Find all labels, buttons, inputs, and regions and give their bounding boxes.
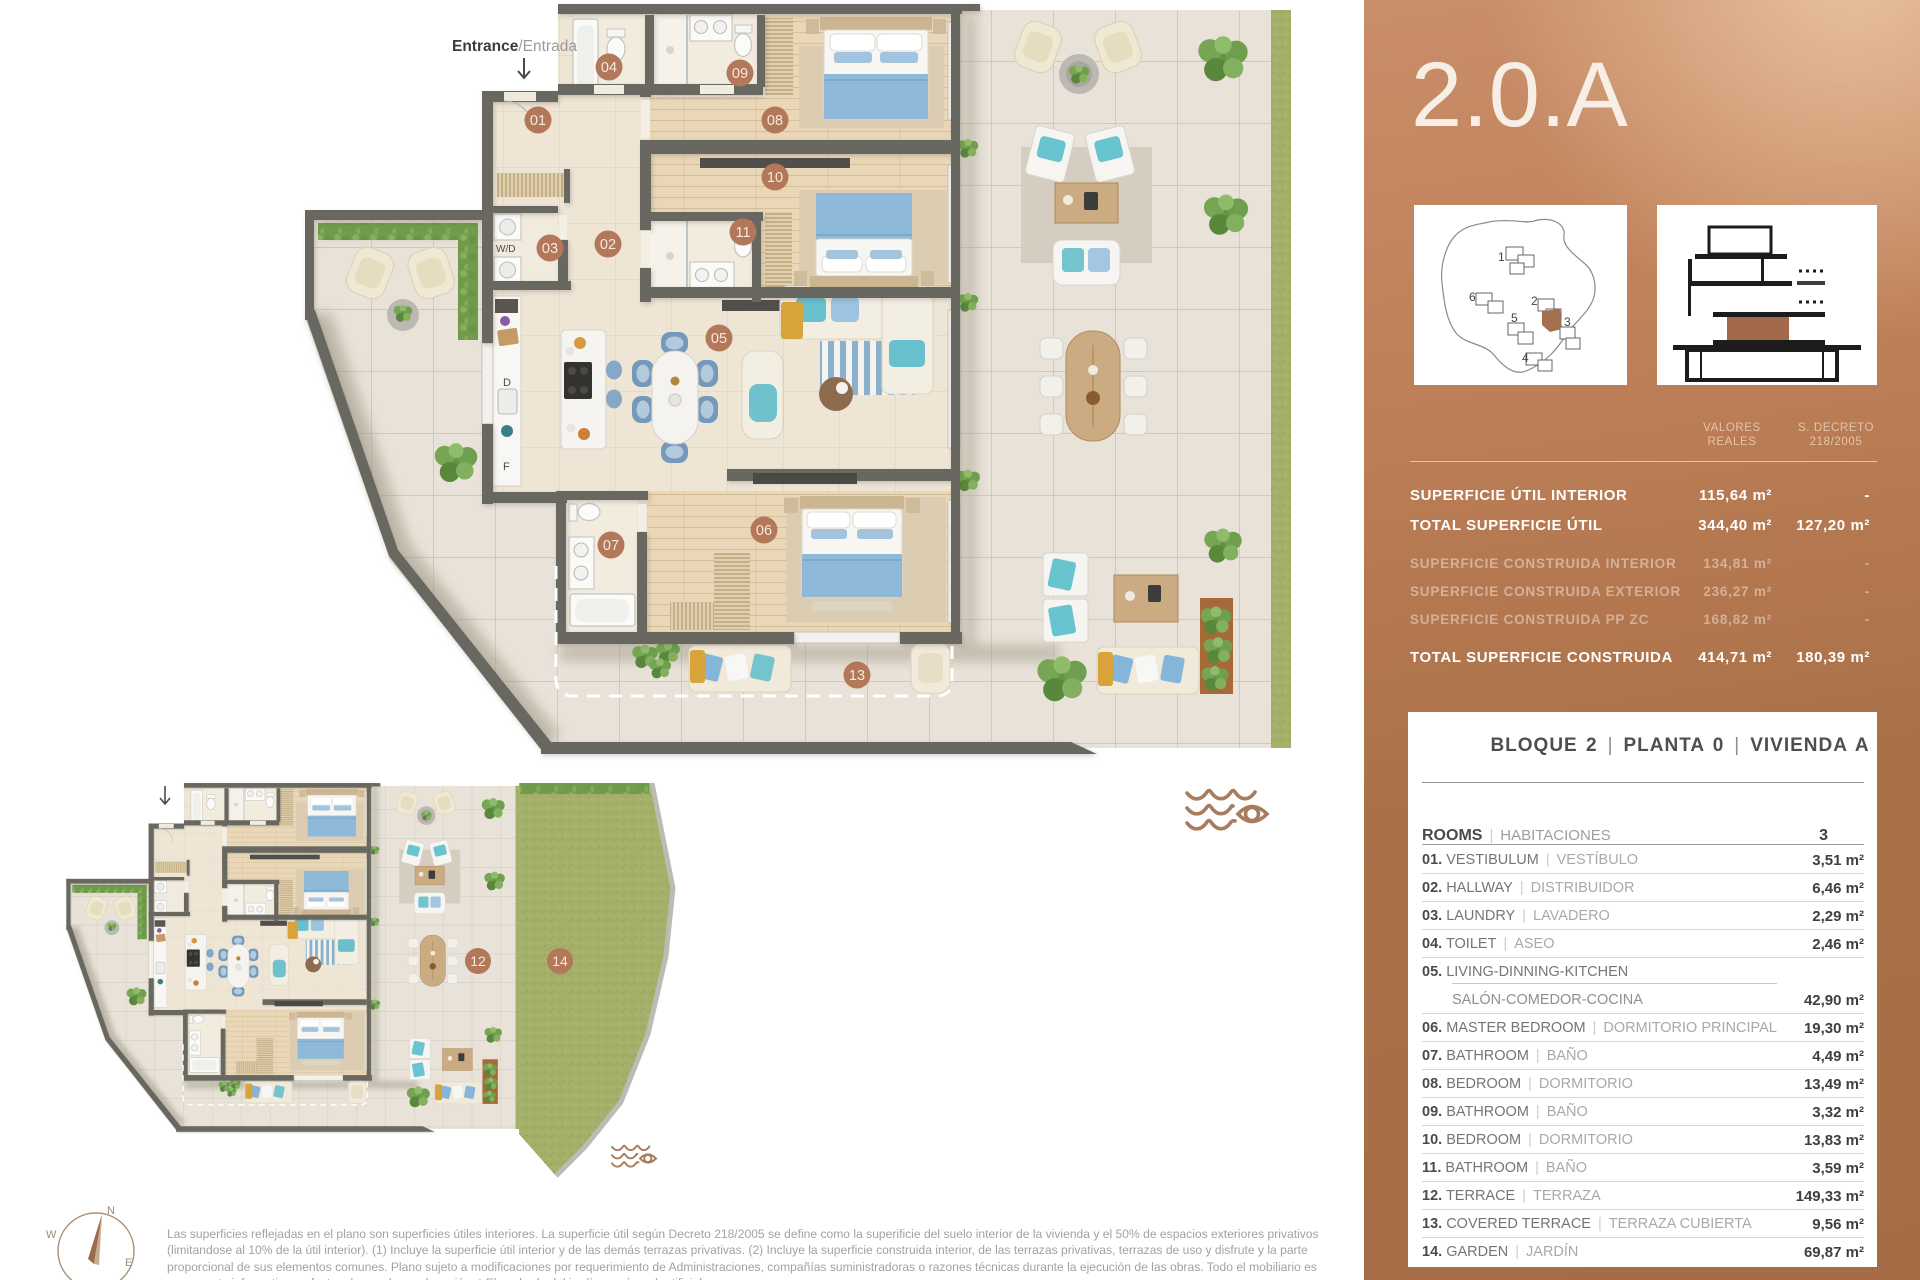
svg-text:W: W — [46, 1229, 57, 1241]
svg-text:F: F — [503, 461, 510, 473]
svg-text:E: E — [125, 1257, 132, 1269]
svg-text:04: 04 — [601, 60, 617, 76]
svg-text:05: 05 — [711, 331, 727, 347]
svg-text:W/D: W/D — [496, 244, 515, 255]
svg-text:08: 08 — [767, 113, 783, 129]
svg-text:12: 12 — [470, 953, 486, 969]
svg-text:09: 09 — [732, 66, 748, 82]
svg-text:07: 07 — [603, 538, 619, 554]
svg-text:13: 13 — [849, 668, 865, 684]
svg-text:11: 11 — [735, 225, 750, 241]
svg-text:03: 03 — [542, 241, 558, 257]
svg-text:D: D — [503, 377, 511, 389]
svg-text:14: 14 — [552, 953, 568, 969]
svg-text:02: 02 — [600, 237, 616, 253]
svg-text:N: N — [107, 1205, 115, 1217]
svg-text:06: 06 — [756, 523, 772, 539]
svg-text:10: 10 — [767, 170, 783, 186]
svg-text:Entrance/Entrada: Entrance/Entrada — [452, 38, 577, 55]
svg-text:01: 01 — [530, 113, 546, 129]
